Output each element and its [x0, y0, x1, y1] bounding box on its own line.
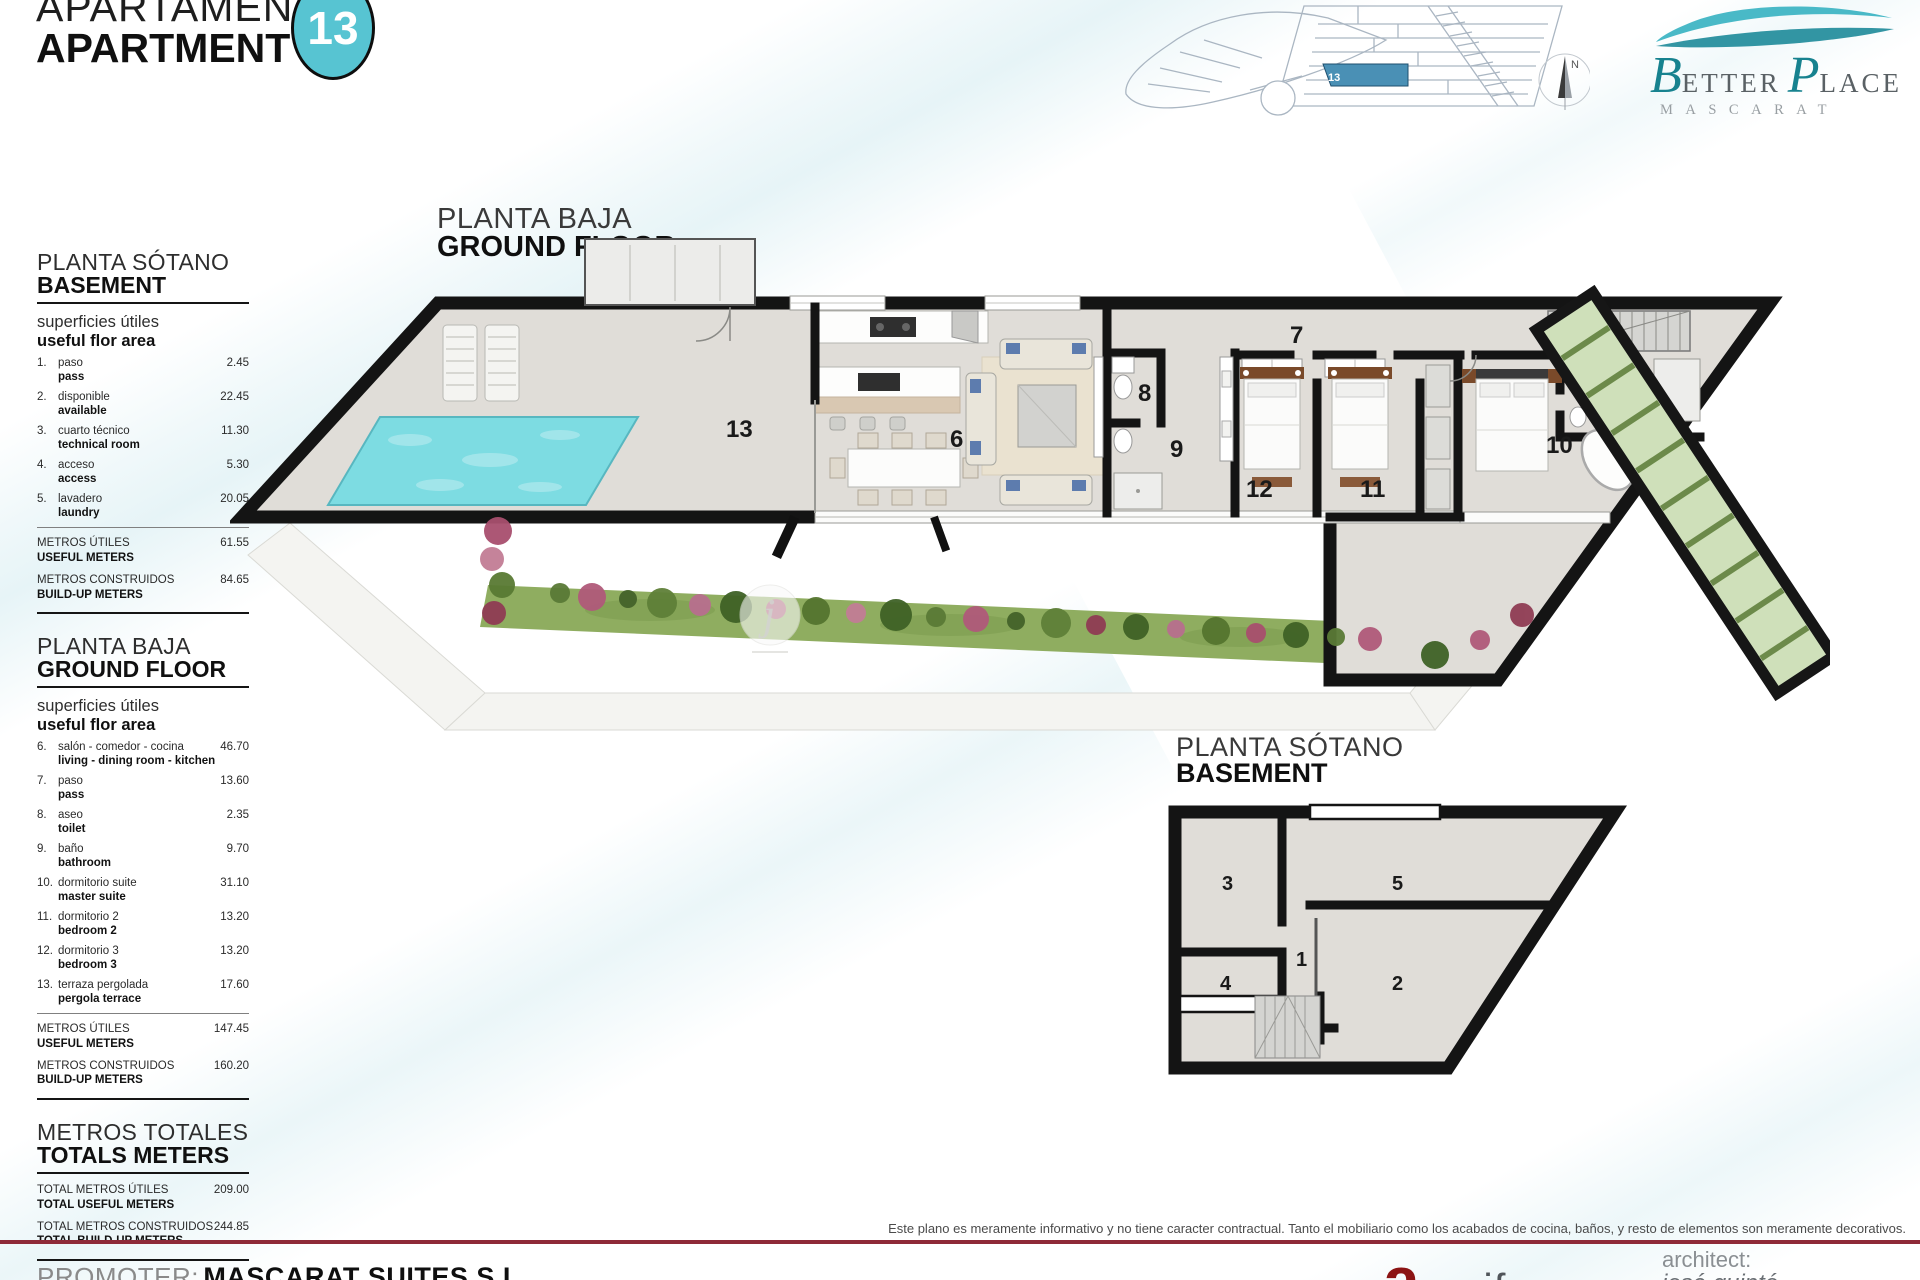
total-row: METROS ÚTILESUSEFUL METERS61.55	[37, 536, 249, 565]
studio-name: rquiforma	[1420, 1265, 1606, 1280]
area-tables-sidebar: PLANTA SÓTANO BASEMENT superficies útile…	[37, 250, 249, 1280]
room-label-5: 5	[1392, 873, 1403, 895]
watermark-logo: j	[740, 585, 800, 653]
basement-plan: 3 5 1 4 2	[1160, 800, 1640, 1090]
plan-sheet: APARTAMENTO APARTMENT 13 13 N	[0, 0, 1920, 1280]
room-label-1: 1	[1296, 949, 1307, 971]
room-label-6: 6	[950, 426, 963, 453]
room-label-7: 7	[1290, 322, 1303, 349]
total-row: METROS ÚTILESUSEFUL METERS147.45	[37, 1022, 249, 1051]
section-heading-es: PLANTA SÓTANO	[37, 250, 249, 274]
room-label-10: 10	[1546, 432, 1573, 459]
architect-credit: architect: josé quintó	[1662, 1248, 1778, 1280]
brand-wordmark: BETTER PLACE	[1650, 55, 1902, 99]
architecture-studio-logo: a rquiforma	[1383, 1247, 1606, 1280]
ground-floor-area-table: PLANTA BAJA GROUND FLOOR superficies úti…	[37, 634, 249, 1100]
promoter-line: PROMOTER: MASCARAT SUITES S.L	[37, 1262, 520, 1280]
bed-room12	[1240, 367, 1304, 487]
table-row: 3.cuarto técnicotechnical room11.30	[37, 424, 249, 452]
total-row: TOTAL METROS ÚTILESTOTAL USEFUL METERS20…	[37, 1183, 249, 1212]
bed-room11	[1328, 367, 1392, 487]
site-location-plan: 13 N	[1118, 2, 1590, 124]
room-label-4: 4	[1220, 973, 1232, 995]
table-row: 12.dormitorio 3bedroom 313.20	[37, 944, 249, 972]
unit-number: 13	[307, 1, 358, 55]
disclaimer-text: Este plano es meramente informativo y no…	[888, 1221, 1906, 1236]
room-label-8: 8	[1138, 380, 1151, 407]
room-label-3: 3	[1222, 873, 1233, 895]
table-row: 7.pasopass13.60	[37, 774, 249, 802]
basement-area-table: PLANTA SÓTANO BASEMENT superficies útile…	[37, 250, 249, 614]
site-outline	[1126, 6, 1562, 115]
section-heading-es: PLANTA BAJA	[37, 634, 249, 658]
subheading-en: useful flor area	[37, 332, 249, 350]
table-row: 4.accesoaccess5.30	[37, 458, 249, 486]
section-heading-es: METROS TOTALES	[37, 1120, 249, 1144]
table-row: 9.bañobathroom9.70	[37, 842, 249, 870]
section-heading-en: TOTALS METERS	[37, 1143, 249, 1167]
footer-rule	[0, 1240, 1920, 1244]
brand-logo: BETTER PLACE MASCARAT	[1650, 2, 1902, 119]
section-heading-en: GROUND FLOOR	[37, 657, 249, 681]
promoter-name: MASCARAT SUITES S.L	[203, 1262, 520, 1280]
total-row: METROS CONSTRUIDOSBUILD-UP METERS84.65	[37, 573, 249, 602]
table-row: 13.terraza pergoladapergola terrace17.60	[37, 978, 249, 1006]
ground-floor-plan: j 13 6 8 9 7 12 11 10	[230, 225, 1830, 740]
brand-word1: ETTER	[1682, 68, 1781, 99]
brand-word2: LACE	[1820, 68, 1903, 99]
table-row: 1.pasopass2.45	[37, 356, 249, 384]
table-row: 11.dormitorio 2bedroom 213.20	[37, 910, 249, 938]
architect-label: architect:	[1662, 1248, 1778, 1271]
basement-outline	[1175, 812, 1615, 1068]
brand-subtitle: MASCARAT	[1660, 102, 1902, 119]
architect-name: josé quintó	[1662, 1271, 1778, 1280]
table-row: 6.salón - comedor - cocinaliving - dinin…	[37, 740, 249, 768]
brand-initial-p: P	[1788, 55, 1820, 97]
table-row: 10.dormitorio suitemaster suite31.10	[37, 876, 249, 904]
total-row: METROS CONSTRUIDOSBUILD-UP METERS160.20	[37, 1059, 249, 1088]
room-label-11: 11	[1360, 476, 1385, 503]
entry-vestibule	[585, 239, 755, 305]
room-label-2: 2	[1392, 973, 1403, 995]
table-row: 8.aseotoilet2.35	[37, 808, 249, 836]
svg-text:13: 13	[1328, 72, 1340, 84]
brand-swoosh-icon	[1650, 2, 1902, 48]
room-label-9: 9	[1170, 436, 1183, 463]
subheading-es: superficies útiles	[37, 313, 249, 331]
subheading-en: useful flor area	[37, 716, 249, 734]
promoter-label: PROMOTER:	[37, 1262, 199, 1280]
section-heading-en: BASEMENT	[37, 273, 249, 297]
room-label-12: 12	[1246, 476, 1273, 503]
table-row: 5.lavaderolaundry20.05	[37, 492, 249, 520]
basement-heading-en: BASEMENT	[1176, 759, 1404, 787]
subheading-es: superficies útiles	[37, 697, 249, 715]
total-row: TOTAL METROS CONSTRUIDOSTOTAL BUILD-UP M…	[37, 1220, 249, 1249]
room-label-13: 13	[726, 416, 753, 443]
swimming-pool	[328, 417, 638, 505]
brand-initial-b: B	[1650, 55, 1682, 97]
studio-initial: a	[1383, 1247, 1420, 1280]
table-row: 2.disponibleavailable22.45	[37, 390, 249, 418]
basement-stairs	[1255, 996, 1320, 1058]
basement-heading: PLANTA SÓTANO BASEMENT	[1176, 733, 1404, 788]
svg-text:N: N	[1571, 59, 1579, 71]
site-unit-13-highlight: 13	[1323, 64, 1408, 86]
